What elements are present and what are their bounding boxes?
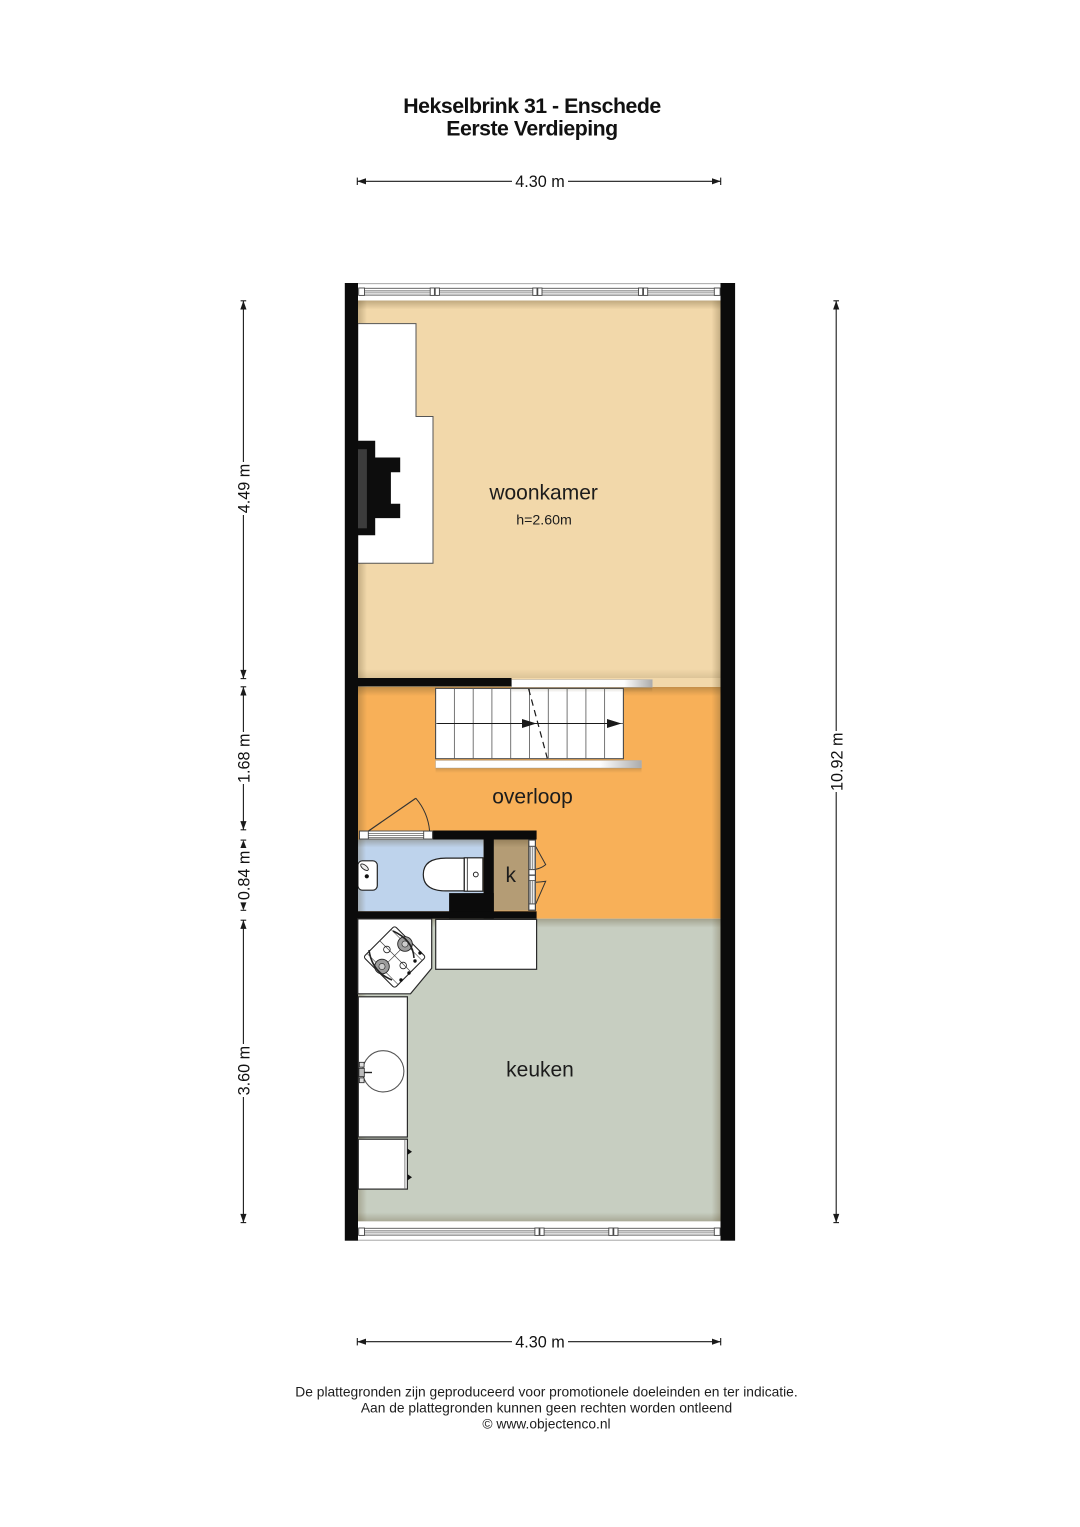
- svg-text:Aan de plattegronden kunnen ge: Aan de plattegronden kunnen geen rechten…: [361, 1401, 732, 1416]
- svg-text:h=2.60m: h=2.60m: [516, 513, 572, 529]
- svg-text:Hekselbrink 31 - Enschede: Hekselbrink 31 - Enschede: [403, 94, 661, 118]
- svg-text:overloop: overloop: [492, 785, 573, 808]
- svg-text:1.68 m: 1.68 m: [236, 734, 254, 784]
- svg-text:Eerste Verdieping: Eerste Verdieping: [446, 116, 617, 140]
- svg-text:woonkamer: woonkamer: [488, 482, 598, 505]
- svg-text:k: k: [506, 864, 517, 887]
- svg-text:De plattegronden zijn geproduc: De plattegronden zijn geproduceerd voor …: [295, 1385, 797, 1400]
- svg-text:0.84 m: 0.84 m: [236, 851, 254, 901]
- svg-text:3.60 m: 3.60 m: [236, 1046, 254, 1096]
- svg-text:10.92 m: 10.92 m: [828, 733, 846, 792]
- svg-text:4.30 m: 4.30 m: [515, 173, 565, 191]
- svg-text:keuken: keuken: [506, 1059, 574, 1082]
- svg-text:4.49 m: 4.49 m: [236, 464, 254, 514]
- svg-text:© www.objectenco.nl: © www.objectenco.nl: [482, 1417, 610, 1432]
- svg-text:4.30 m: 4.30 m: [515, 1333, 565, 1351]
